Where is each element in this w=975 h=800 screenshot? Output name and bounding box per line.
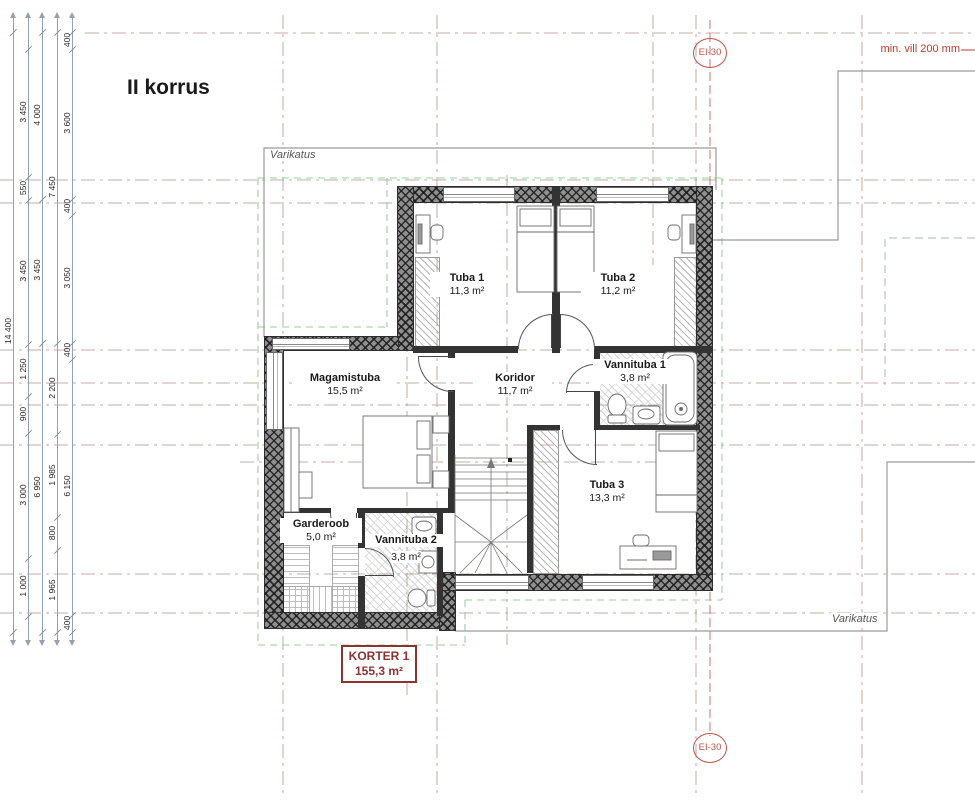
furniture-layer xyxy=(0,0,975,800)
room-label-tuba1: Tuba 1 11,3 m² xyxy=(430,272,504,297)
room-name: Vannituba 1 xyxy=(595,359,675,372)
room-label-tuba2: Tuba 2 11,2 m² xyxy=(581,272,655,297)
room-area: 15,5 m² xyxy=(299,385,391,397)
room-name: Tuba 2 xyxy=(583,272,653,285)
room-area: 5,0 m² xyxy=(282,531,360,543)
magamistuba-nightstand-1 xyxy=(433,416,449,433)
magamistuba-pillow-2 xyxy=(417,455,430,483)
room-label-tuba3: Tuba 3 13,3 m² xyxy=(570,479,644,504)
room-area: 13,3 m² xyxy=(572,492,642,504)
staircase xyxy=(455,455,527,573)
room-area: 11,7 m² xyxy=(480,385,550,397)
room-name: Magamistuba xyxy=(299,372,391,385)
magamistuba-dresser xyxy=(299,472,312,498)
room-area: 11,2 m² xyxy=(583,285,653,297)
apartment-name: KORTER 1 xyxy=(344,649,414,664)
magamistuba-wardrobe xyxy=(284,428,299,512)
insulation-note: min. vill 200 mm xyxy=(860,43,960,55)
tuba3-monitor xyxy=(653,551,671,560)
tuba3-chair xyxy=(633,535,649,546)
room-area: 3,8 m² xyxy=(391,551,421,563)
room-name: Garderoob xyxy=(282,518,360,531)
room-label-koridor: Koridor 11,7 m² xyxy=(478,372,552,397)
room-label-magamistuba: Magamistuba 15,5 m² xyxy=(297,372,393,397)
stair-direction-arrow xyxy=(487,458,495,468)
tuba2-pillow xyxy=(560,209,591,226)
toilet-1 xyxy=(608,394,626,416)
room-area: 11,3 m² xyxy=(432,285,502,297)
tuba2-chair xyxy=(668,225,680,240)
apartment-tag: KORTER 1 155,3 m² xyxy=(341,645,417,683)
room-name: Vannituba 2 xyxy=(365,534,447,547)
tuba1-chair xyxy=(431,225,443,240)
room-name: Koridor xyxy=(480,372,550,385)
reference-point xyxy=(508,458,512,462)
canopy-label-bottom: Varikatus xyxy=(830,613,879,625)
fire-rating-badge-top: EI-30 xyxy=(693,38,727,68)
room-label-vannituba2: Vannituba 2 3,8 m² xyxy=(363,534,449,566)
apartment-area: 155,3 m² xyxy=(344,664,414,679)
floor-plan-drawing: II korrus Tuba 1 11,3 m² Tuba 2 11,2 m² … xyxy=(0,0,975,800)
magamistuba-nightstand-2 xyxy=(433,471,449,488)
tuba3-pillow xyxy=(659,434,694,451)
canopy-label-top: Varikatus xyxy=(268,149,317,161)
room-name: Tuba 3 xyxy=(572,479,642,492)
room-area: 3,8 m² xyxy=(595,372,675,384)
tuba1-pillow xyxy=(520,209,551,226)
toilet-2 xyxy=(408,589,426,607)
page-title: II korrus xyxy=(127,76,210,100)
magamistuba-pillow-1 xyxy=(417,421,430,449)
magamistuba-furniture xyxy=(284,416,449,512)
room-label-garderoob: Garderoob 5,0 m² xyxy=(280,518,362,543)
fire-rating-badge-bottom: EI-30 xyxy=(693,733,727,763)
room-label-vannituba1: Vannituba 1 3,8 m² xyxy=(593,359,677,384)
room-name: Tuba 1 xyxy=(432,272,502,285)
